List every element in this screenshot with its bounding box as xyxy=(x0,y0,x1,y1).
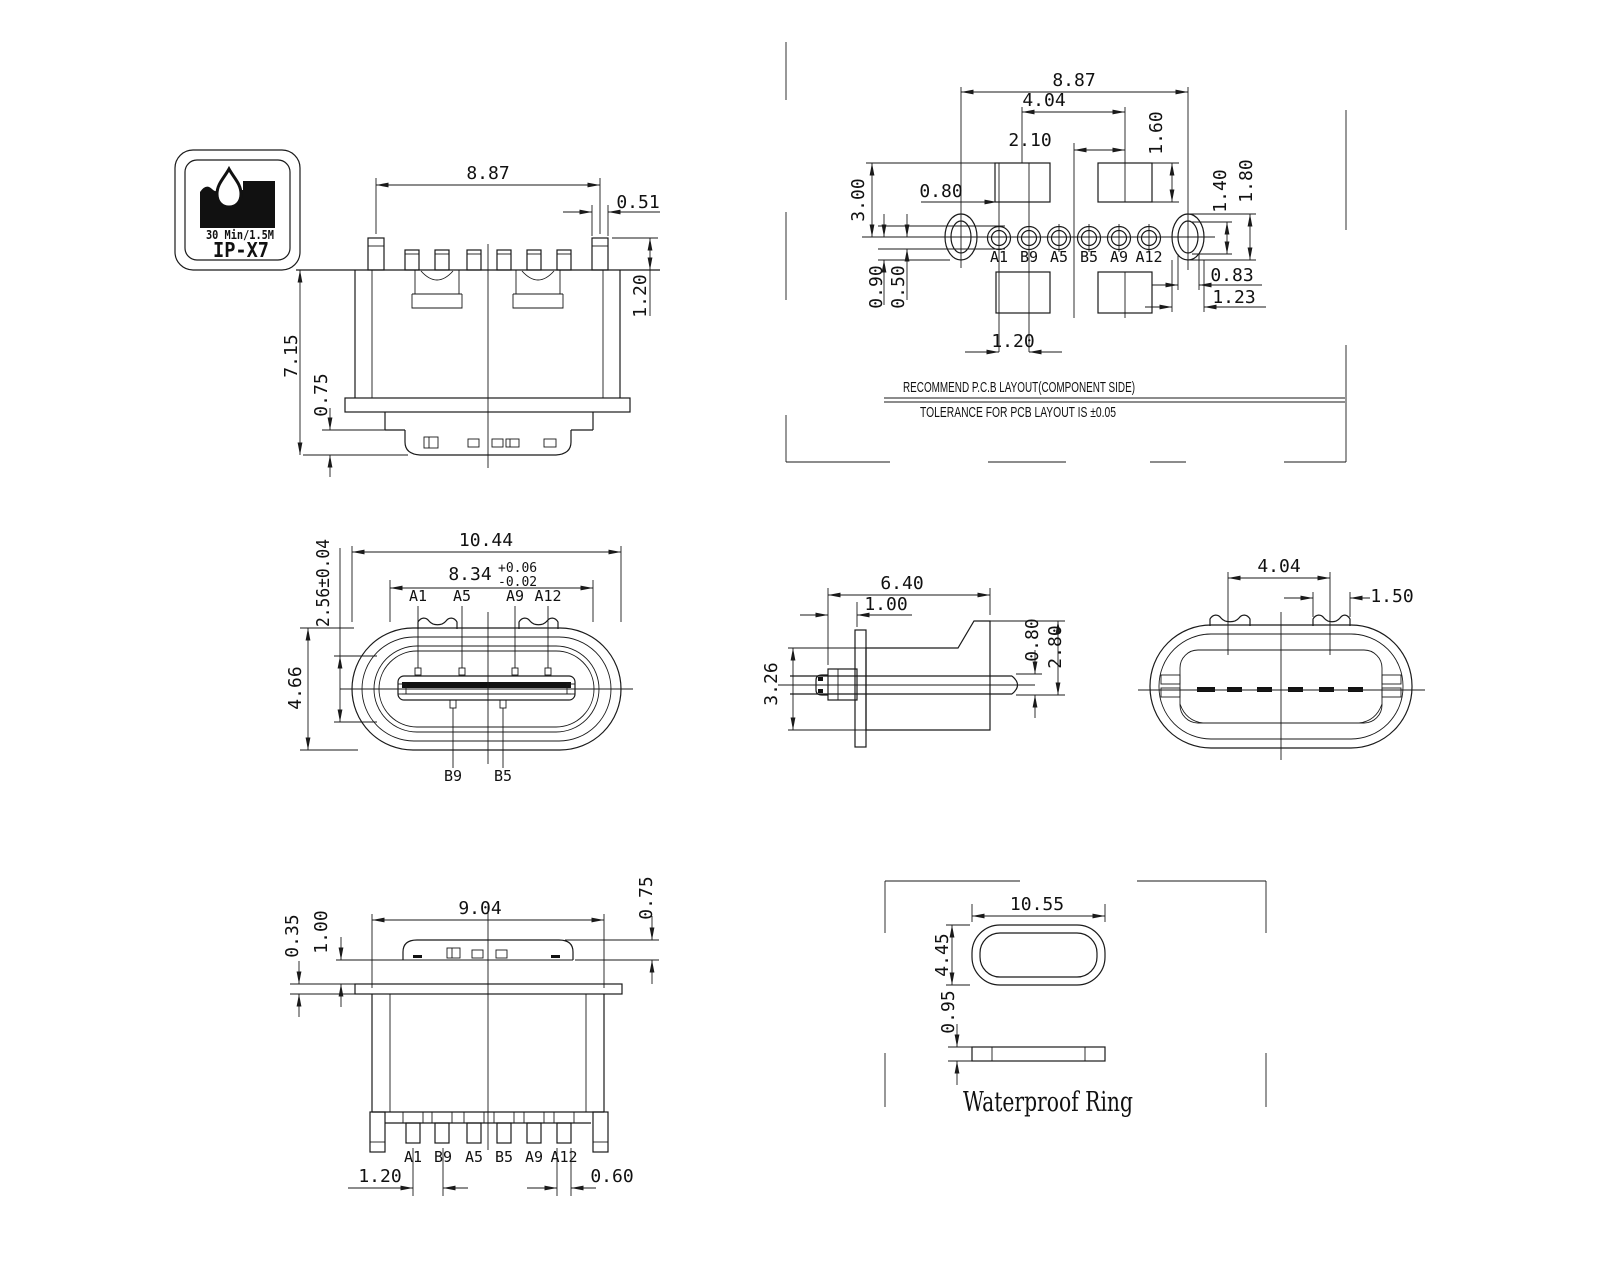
side-outline xyxy=(778,621,1035,747)
mating-face-view: A1 A5 A9 A12 B9 B5 10.44 8.34 +0.06 -0 xyxy=(285,530,633,785)
front-top-outline xyxy=(296,238,660,468)
dim-tab-width: 1.50 xyxy=(1370,586,1413,607)
pin-label: B5 xyxy=(1080,248,1098,266)
dim-bottom-lip: 0.75 xyxy=(311,373,332,416)
tab-left xyxy=(418,618,457,629)
dim-cavity: 2.80 xyxy=(1045,625,1066,668)
bottom-outline: A1 B9 A5 B5 A9 A12 xyxy=(355,906,622,1166)
pcb-pin-labels: A1 B9 A5 B5 A9 A12 xyxy=(990,248,1163,266)
side-view: 6.40 1.00 3.26 0.80 2.80 xyxy=(761,573,1066,747)
ring-caption: Waterproof Ring xyxy=(963,1087,1133,1118)
waterproof-ring-view: 10.55 4.45 0.95 Waterproof Ring xyxy=(885,881,1266,1118)
flange xyxy=(345,398,630,412)
dim-height: 7.15 xyxy=(281,334,302,377)
face-outline xyxy=(340,612,633,764)
tab-right xyxy=(519,618,558,629)
dim-pin-width: 0.51 xyxy=(616,192,659,213)
dim-width: 9.04 xyxy=(458,898,501,919)
dim-tongue-gap: 0.80 xyxy=(1022,618,1043,661)
badge-rating-label: IP-X7 xyxy=(213,238,269,262)
dim-hole-outer-w: 1.23 xyxy=(1212,287,1255,308)
pin-label: B5 xyxy=(495,1148,513,1166)
contact-dashes xyxy=(1197,687,1363,692)
pin-label: A12 xyxy=(550,1148,577,1166)
note-line2: TOLERANCE FOR PCB LAYOUT IS ±0.05 xyxy=(920,404,1116,421)
front-top-view: 8.87 0.51 1.20 7.15 0.75 xyxy=(281,163,660,477)
mount-feature-right xyxy=(513,270,563,308)
pin-label: A5 xyxy=(1050,248,1068,266)
dim-pad-rise: 3.00 xyxy=(848,178,869,221)
dim-pad-height: 1.60 xyxy=(1146,111,1167,154)
dim-inner-height: 2.56±0.04 xyxy=(313,539,334,627)
dim-tol-minus: -0.02 xyxy=(498,575,537,590)
pcb-layout-view: A1 B9 A5 B5 A9 A12 8.87 4.04 2.10 1.60 3… xyxy=(786,42,1346,462)
dim-width: 10.44 xyxy=(459,530,513,551)
bottom-shell-contacts xyxy=(424,437,556,448)
dim-cap-height: 0.75 xyxy=(636,876,657,919)
tab-left xyxy=(1210,615,1250,626)
dim-flange-offset: 1.00 xyxy=(864,594,907,615)
rear-face-view: 4.04 1.50 xyxy=(1138,556,1425,760)
pin-label: A1 xyxy=(409,587,427,605)
pin-label: B9 xyxy=(1020,248,1038,266)
pin-label: A12 xyxy=(534,587,561,605)
dim-hole-span: 8.87 xyxy=(1052,70,1095,91)
dim-ring-thickness: 0.95 xyxy=(938,990,959,1033)
flange xyxy=(355,984,622,994)
drawing-canvas: 30 Min/1.5M IP-X7 xyxy=(0,0,1600,1280)
bottom-view: A1 B9 A5 B5 A9 A12 9.04 0.75 1.00 xyxy=(282,876,659,1196)
dim-pad-span: 4.04 xyxy=(1022,90,1065,111)
pin-label: B9 xyxy=(444,767,462,785)
dim-pad-offset: 2.10 xyxy=(1008,130,1051,151)
dim-hole-inner-w: 0.83 xyxy=(1210,265,1253,286)
dim-pin-pitch: 1.20 xyxy=(358,1166,401,1187)
dim-tab-span: 4.04 xyxy=(1257,556,1300,577)
dim-hole-inner-h: 1.40 xyxy=(1210,169,1231,212)
dim-oval-drop: 0.90 xyxy=(866,265,887,308)
dim-pin-offset: 0.80 xyxy=(919,181,962,202)
pcb-dimensions: 8.87 4.04 2.10 1.60 3.00 0.80 0.90 0.50 xyxy=(848,70,1266,352)
dim-tongue-width: 8.34 xyxy=(448,564,491,585)
pin-label: B5 xyxy=(494,767,512,785)
ip-rating-badge: 30 Min/1.5M IP-X7 xyxy=(175,150,300,270)
bottom-pin-labels: A1 B9 A5 B5 A9 A12 xyxy=(404,1148,578,1166)
pin-label: A5 xyxy=(465,1148,483,1166)
ring-dimensions: 10.55 4.45 0.95 xyxy=(932,894,1105,1085)
side-dimensions: 6.40 1.00 3.26 0.80 2.80 xyxy=(761,573,1066,730)
dim-pin-width: 0.60 xyxy=(590,1166,633,1187)
pad-bottom-left xyxy=(996,272,1050,313)
pin-label: A1 xyxy=(990,248,1008,266)
solder-pads xyxy=(995,163,1152,313)
drawing-sheet: 30 Min/1.5M IP-X7 xyxy=(0,0,1600,1280)
rear-outline xyxy=(1138,612,1425,760)
dim-tol-plus: +0.06 xyxy=(498,561,537,576)
ring-top-view xyxy=(972,925,1105,985)
dim-height: 4.66 xyxy=(285,666,306,709)
pad-top-left xyxy=(995,163,1050,202)
dim-pin-drop: 0.50 xyxy=(888,265,909,308)
dim-hole-outer-h: 1.80 xyxy=(1236,159,1257,202)
water-drop-icon xyxy=(200,169,275,228)
pin-label: A5 xyxy=(453,587,471,605)
dim-width: 8.87 xyxy=(466,163,509,184)
note-line1: RECOMMEND P.C.B LAYOUT(COMPONENT SIDE) xyxy=(903,379,1135,396)
dim-pin-height: 1.20 xyxy=(630,274,651,317)
bottom-pins xyxy=(403,1112,574,1143)
pcb-notes: RECOMMEND P.C.B LAYOUT(COMPONENT SIDE) T… xyxy=(884,379,1345,421)
dim-cap-offset: 1.00 xyxy=(311,910,332,953)
pin-label: A9 xyxy=(1110,248,1128,266)
cap-contacts xyxy=(413,948,560,958)
dim-pin-pitch: 1.20 xyxy=(991,331,1034,352)
pin-label: A9 xyxy=(525,1148,543,1166)
pin-label: A12 xyxy=(1135,248,1162,266)
mount-feature-left xyxy=(412,270,462,308)
tongue xyxy=(398,676,575,700)
tab-right xyxy=(1313,615,1350,626)
dim-ring-height: 4.45 xyxy=(932,933,953,976)
ring-side-view xyxy=(972,1047,1105,1061)
rear-dimensions: 4.04 1.50 xyxy=(1228,556,1414,655)
dim-height: 3.26 xyxy=(761,662,782,705)
dim-ring-width: 10.55 xyxy=(1010,894,1064,915)
dim-flange: 0.35 xyxy=(282,914,303,957)
dim-depth: 6.40 xyxy=(880,573,923,594)
